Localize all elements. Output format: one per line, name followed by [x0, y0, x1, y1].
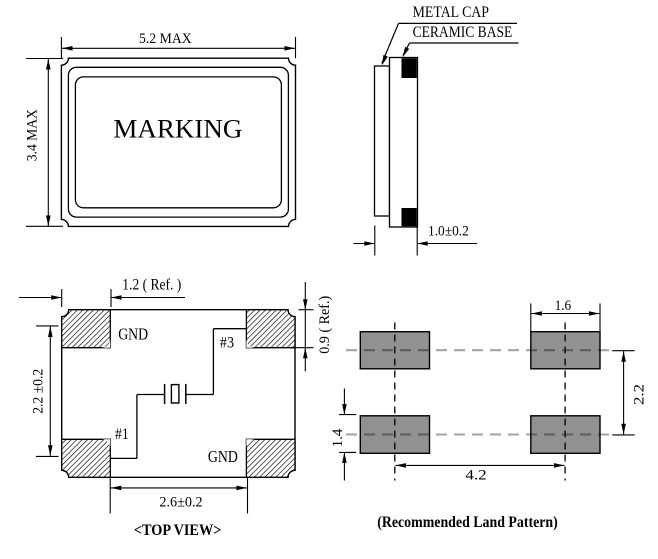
svg-text:2.2: 2.2: [632, 384, 648, 405]
svg-text:METAL CAP: METAL CAP: [413, 4, 489, 21]
svg-text:0.9 ( Ref.): 0.9 ( Ref.): [317, 296, 333, 354]
svg-text:(Recommended Land Pattern): (Recommended Land Pattern): [377, 514, 558, 531]
svg-text:MARKING: MARKING: [113, 115, 242, 144]
svg-text:#1: #1: [115, 426, 129, 443]
svg-text:GND: GND: [118, 324, 148, 343]
svg-text:2.6±0.2: 2.6±0.2: [159, 495, 202, 511]
svg-text:1.4: 1.4: [330, 428, 346, 447]
svg-text:3.4 MAX: 3.4 MAX: [25, 109, 41, 161]
svg-text:1.2 ( Ref. ): 1.2 ( Ref. ): [122, 277, 181, 294]
svg-text:4.2: 4.2: [465, 468, 486, 484]
svg-text:1.0±0.2: 1.0±0.2: [428, 223, 469, 239]
svg-text:1.6: 1.6: [555, 298, 572, 314]
svg-text:CERAMIC BASE: CERAMIC BASE: [413, 24, 513, 41]
svg-text:<TOP VIEW>: <TOP VIEW>: [134, 522, 222, 539]
svg-text:5.2 MAX: 5.2 MAX: [139, 31, 192, 47]
svg-text:2.2 ±0.2: 2.2 ±0.2: [30, 369, 46, 414]
svg-text:GND: GND: [208, 447, 238, 466]
svg-text:#3: #3: [220, 335, 234, 352]
